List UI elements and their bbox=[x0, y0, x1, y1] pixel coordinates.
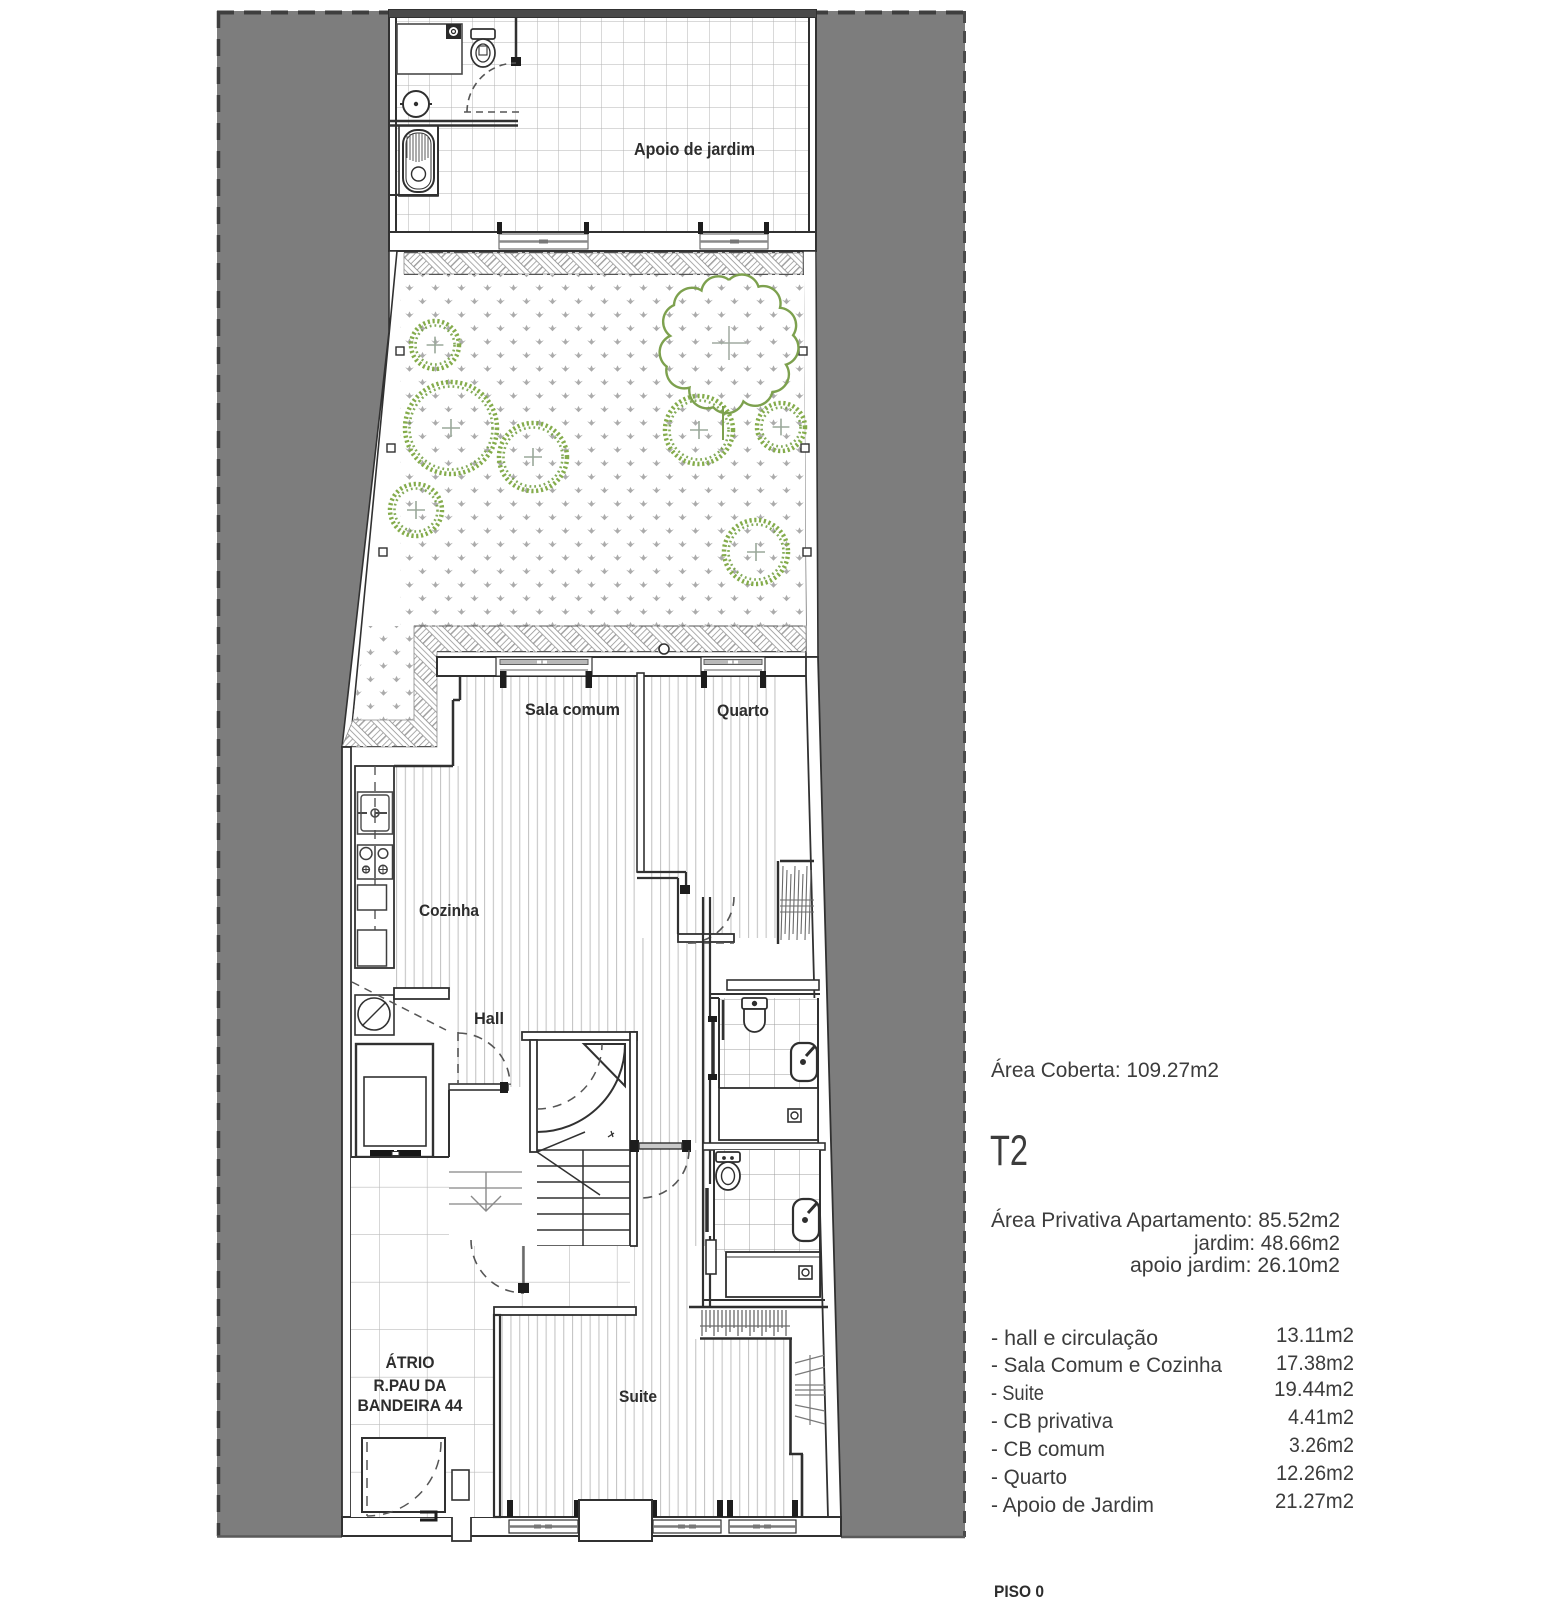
svg-text:ÁTRIO: ÁTRIO bbox=[386, 1353, 435, 1372]
svg-text:Hall: Hall bbox=[474, 1009, 504, 1028]
svg-text:Quarto: Quarto bbox=[717, 701, 769, 720]
svg-text:3.26m2: 3.26m2 bbox=[1289, 1434, 1354, 1457]
svg-text:Sala comum: Sala comum bbox=[525, 700, 620, 719]
svg-text:apoio jardim: 26.10m2: apoio jardim: 26.10m2 bbox=[1130, 1254, 1340, 1277]
svg-text:- CB privativa: - CB privativa bbox=[991, 1410, 1113, 1433]
svg-text:jardim: 48.66m2: jardim: 48.66m2 bbox=[1193, 1232, 1340, 1255]
svg-text:21.27m2: 21.27m2 bbox=[1275, 1490, 1354, 1513]
svg-text:4.41m2: 4.41m2 bbox=[1288, 1406, 1354, 1429]
svg-text:19.44m2: 19.44m2 bbox=[1274, 1378, 1354, 1401]
svg-text:R.PAU DA: R.PAU DA bbox=[374, 1377, 447, 1395]
svg-text:PISO 0: PISO 0 bbox=[994, 1582, 1044, 1601]
svg-text:12.26m2: 12.26m2 bbox=[1276, 1462, 1354, 1485]
svg-text:Cozinha: Cozinha bbox=[419, 901, 479, 920]
svg-text:- Sala Comum e Cozinha: - Sala Comum e Cozinha bbox=[991, 1354, 1222, 1377]
svg-text:Apoio de jardim: Apoio de jardim bbox=[634, 139, 755, 159]
svg-text:17.38m2: 17.38m2 bbox=[1276, 1352, 1354, 1375]
svg-text:- Apoio de Jardim: - Apoio de Jardim bbox=[991, 1494, 1154, 1517]
svg-text:Área Coberta: 109.27m2: Área Coberta: 109.27m2 bbox=[991, 1059, 1219, 1082]
svg-text:T2: T2 bbox=[990, 1127, 1028, 1175]
svg-text:- hall e circulação: - hall e circulação bbox=[991, 1327, 1158, 1350]
svg-text:- Suite: - Suite bbox=[991, 1382, 1044, 1405]
svg-text:Suite: Suite bbox=[619, 1387, 657, 1406]
svg-text:Área Privativa Apartamento: 85: Área Privativa Apartamento: 85.52m2 bbox=[991, 1209, 1340, 1232]
svg-text:- Quarto: - Quarto bbox=[991, 1466, 1067, 1489]
svg-text:BANDEIRA 44: BANDEIRA 44 bbox=[358, 1397, 464, 1415]
svg-text:13.11m2: 13.11m2 bbox=[1276, 1324, 1354, 1347]
svg-text:- CB comum: - CB comum bbox=[991, 1438, 1105, 1461]
